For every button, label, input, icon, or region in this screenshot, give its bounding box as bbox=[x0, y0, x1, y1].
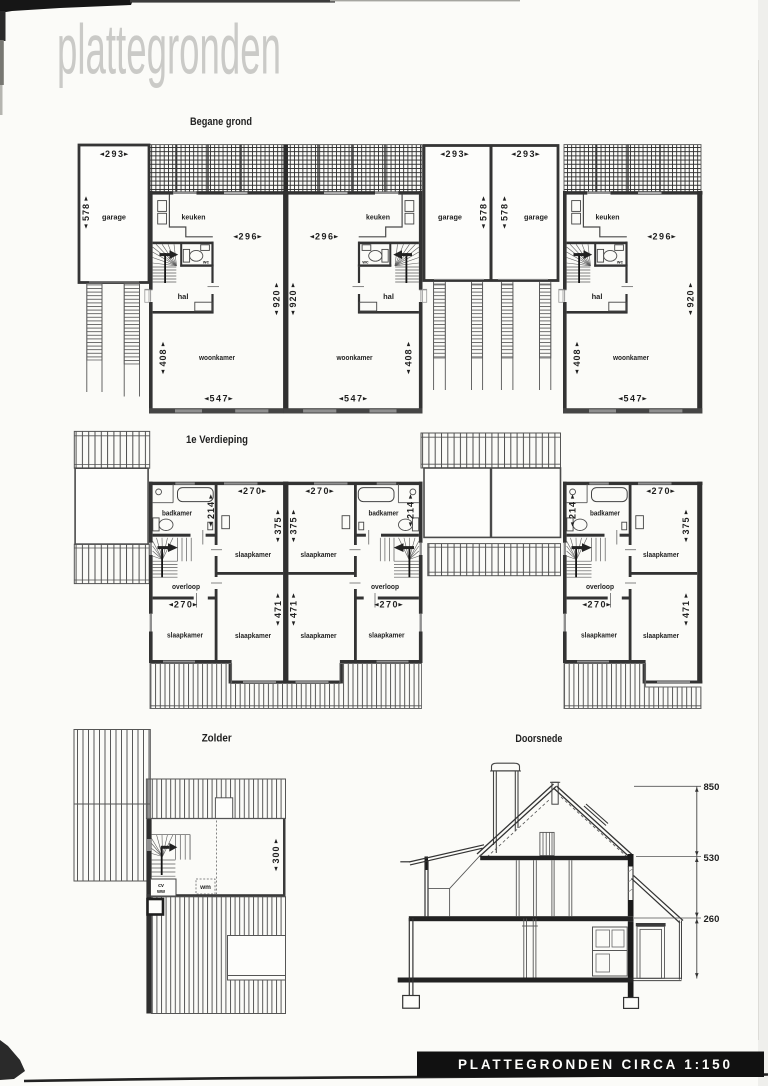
svg-text:214: 214 bbox=[206, 502, 216, 519]
svg-text:garage: garage bbox=[102, 213, 126, 222]
svg-text:547: 547 bbox=[344, 394, 362, 404]
svg-text:296: 296 bbox=[653, 232, 671, 242]
svg-text:375: 375 bbox=[273, 518, 283, 535]
svg-text:471: 471 bbox=[273, 601, 283, 618]
svg-text:471: 471 bbox=[681, 601, 691, 618]
svg-text:woonkamer: woonkamer bbox=[612, 353, 649, 362]
svg-text:badkamer: badkamer bbox=[369, 509, 399, 518]
svg-text:214: 214 bbox=[568, 502, 578, 519]
svg-text:keuken: keuken bbox=[596, 213, 620, 222]
svg-text:850: 850 bbox=[704, 782, 720, 793]
svg-text:slaapkamer: slaapkamer bbox=[301, 631, 337, 640]
svg-text:cv: cv bbox=[158, 883, 164, 889]
svg-text:slaapkamer: slaapkamer bbox=[235, 550, 271, 559]
svg-text:hal: hal bbox=[383, 292, 394, 301]
svg-text:woonkamer: woonkamer bbox=[198, 353, 235, 362]
svg-text:keuken: keuken bbox=[182, 213, 206, 222]
svg-text:408: 408 bbox=[404, 350, 414, 367]
svg-text:wc: wc bbox=[616, 260, 624, 265]
svg-text:300: 300 bbox=[271, 847, 281, 864]
svg-text:hal: hal bbox=[178, 292, 189, 301]
svg-text:471: 471 bbox=[289, 601, 299, 618]
svg-text:578: 578 bbox=[500, 204, 510, 221]
svg-text:slaapkamer: slaapkamer bbox=[643, 631, 679, 640]
svg-text:920: 920 bbox=[686, 291, 696, 308]
svg-text:578: 578 bbox=[479, 204, 489, 221]
svg-text:wm: wm bbox=[199, 884, 211, 891]
svg-text:hal: hal bbox=[592, 292, 603, 301]
svg-text:296: 296 bbox=[315, 232, 333, 242]
svg-text:slaapkamer: slaapkamer bbox=[235, 631, 271, 640]
svg-text:1e Verdieping: 1e Verdieping bbox=[186, 434, 248, 446]
svg-text:293: 293 bbox=[105, 149, 123, 159]
svg-text:920: 920 bbox=[288, 291, 298, 308]
svg-text:Zolder: Zolder bbox=[202, 733, 233, 745]
svg-text:270: 270 bbox=[652, 486, 670, 496]
svg-text:408: 408 bbox=[158, 350, 168, 367]
svg-text:920: 920 bbox=[272, 291, 282, 308]
svg-text:408: 408 bbox=[572, 350, 582, 367]
svg-text:slaapkamer: slaapkamer bbox=[301, 550, 337, 559]
svg-text:slaapkamer: slaapkamer bbox=[369, 631, 405, 640]
svg-text:overloop: overloop bbox=[586, 582, 614, 591]
svg-text:Begane grond: Begane grond bbox=[190, 116, 252, 128]
svg-text:slaapkamer: slaapkamer bbox=[643, 550, 679, 559]
svg-text:Doorsnede: Doorsnede bbox=[515, 733, 562, 745]
svg-text:woonkamer: woonkamer bbox=[336, 353, 373, 362]
svg-text:garage: garage bbox=[524, 213, 548, 222]
svg-text:293: 293 bbox=[517, 149, 535, 159]
svg-text:530: 530 bbox=[704, 853, 720, 864]
svg-text:wc: wc bbox=[202, 260, 210, 265]
svg-text:270: 270 bbox=[588, 600, 606, 610]
svg-text:keuken: keuken bbox=[366, 213, 390, 222]
svg-text:270: 270 bbox=[174, 600, 192, 610]
svg-text:slaapkamer: slaapkamer bbox=[581, 631, 617, 640]
svg-text:overloop: overloop bbox=[371, 582, 399, 591]
svg-text:375: 375 bbox=[289, 518, 299, 535]
svg-text:slaapkamer: slaapkamer bbox=[167, 631, 203, 640]
svg-text:270: 270 bbox=[380, 600, 398, 610]
svg-text:293: 293 bbox=[446, 149, 464, 159]
svg-text:garage: garage bbox=[438, 213, 462, 222]
svg-text:badkamer: badkamer bbox=[162, 509, 192, 518]
svg-text:260: 260 bbox=[704, 914, 720, 925]
svg-text:547: 547 bbox=[210, 394, 228, 404]
svg-text:547: 547 bbox=[624, 394, 642, 404]
svg-text:badkamer: badkamer bbox=[590, 509, 620, 518]
svg-text:375: 375 bbox=[681, 518, 691, 535]
svg-text:578: 578 bbox=[81, 204, 91, 221]
svg-text:214: 214 bbox=[406, 502, 416, 519]
svg-text:wc: wc bbox=[361, 260, 369, 265]
svg-text:overloop: overloop bbox=[172, 582, 200, 591]
svg-text:270: 270 bbox=[243, 486, 261, 496]
svg-text:296: 296 bbox=[239, 232, 257, 242]
svg-text:PLATTEGRONDEN CIRCA 1:150: PLATTEGRONDEN CIRCA 1:150 bbox=[458, 1057, 730, 1072]
svg-text:270: 270 bbox=[311, 486, 329, 496]
svg-text:plattegronden: plattegronden bbox=[57, 10, 281, 88]
svg-text:ww: ww bbox=[156, 889, 166, 895]
